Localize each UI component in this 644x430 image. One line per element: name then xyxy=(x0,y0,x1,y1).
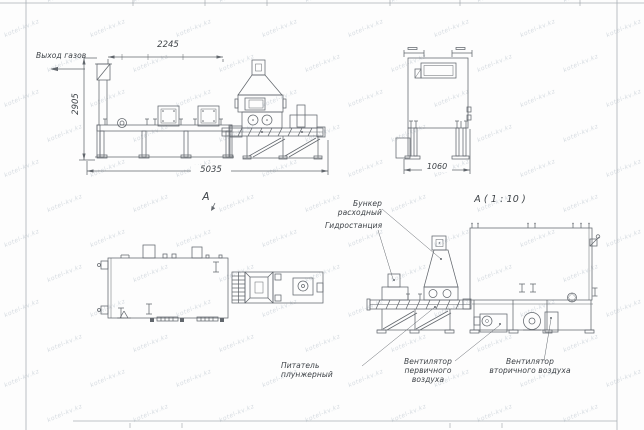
front-view xyxy=(50,54,328,175)
side-view xyxy=(396,48,472,175)
dim-side-width: 1060 xyxy=(422,162,452,172)
dim-height: 2905 xyxy=(71,84,83,124)
plunger-feeder-label: Питатель плунжерный xyxy=(281,361,363,379)
dim-overall-length: 5035 xyxy=(191,165,231,175)
dim-top-width: 2245 xyxy=(146,40,190,50)
gas-outlet-label: Выход газов xyxy=(36,51,100,60)
detail-view-a xyxy=(367,223,600,333)
hydraulic-station-label: Гидростанция xyxy=(325,221,377,230)
primary-air-fan-label: Вентилятор первичного воздуха xyxy=(390,357,466,384)
secondary-air-fan-label: Вентилятор вторичного воздуха xyxy=(487,357,573,375)
detail-a-label: А ( 1 : 10 ) xyxy=(464,195,536,204)
plan-view xyxy=(98,245,324,322)
view-a-label: А xyxy=(198,193,214,202)
feed-hopper-label: Бункер расходный xyxy=(316,199,382,217)
drawing-sheet: kotel-kv.kzkotel-kv.kzkotel-kv.kzkotel-k… xyxy=(0,0,644,430)
